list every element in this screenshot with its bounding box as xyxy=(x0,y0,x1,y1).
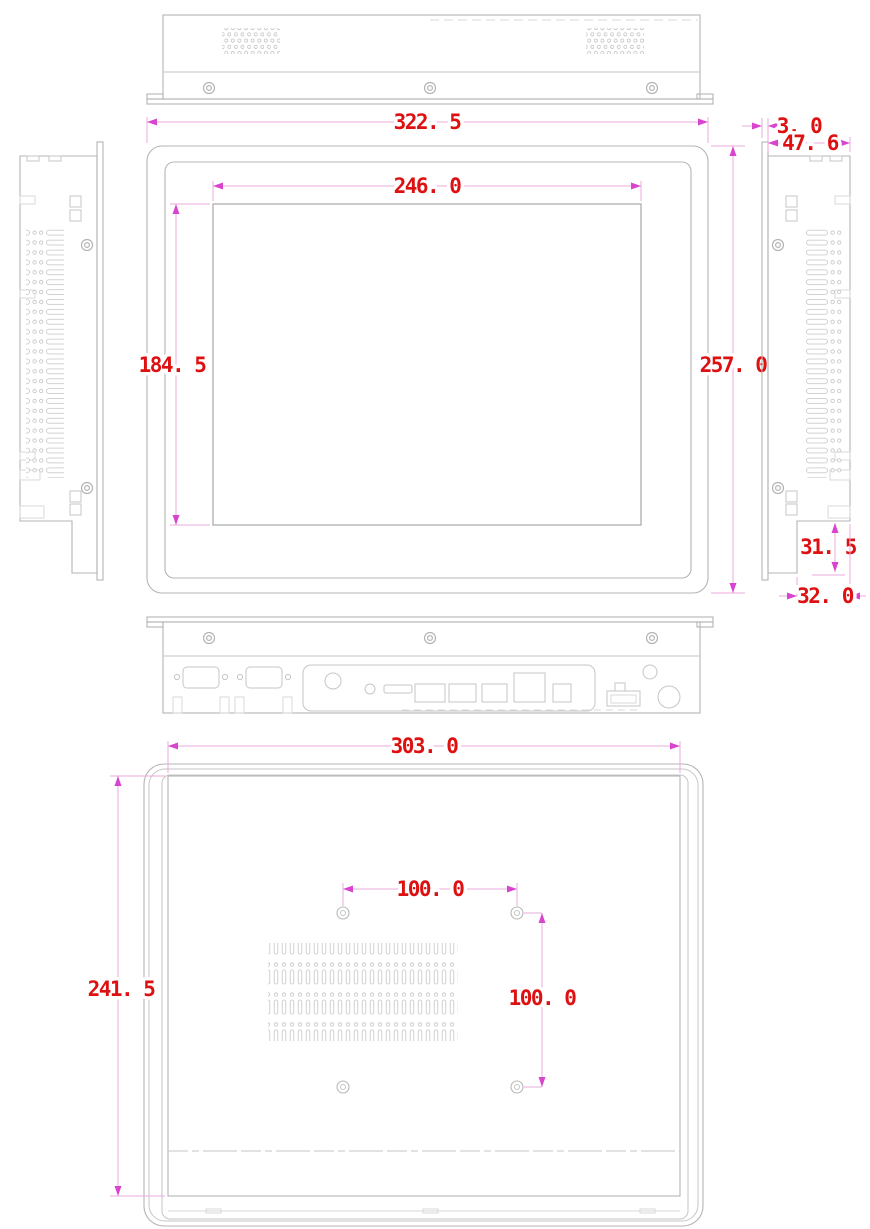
dim-label-display-height: 184. 5 xyxy=(139,353,207,377)
dim-label-rear-body-height: 241. 5 xyxy=(88,977,156,1001)
rear-vent-grille xyxy=(268,943,458,1041)
screw-icon xyxy=(647,633,658,644)
dim-label-display-width: 246. 0 xyxy=(394,174,462,198)
screw-icon xyxy=(204,83,215,94)
dim-label-vesa-horizontal: 100. 0 xyxy=(397,877,465,901)
screw-icon xyxy=(773,240,784,251)
side-vent-grille xyxy=(806,228,844,478)
screw-icon xyxy=(425,633,436,644)
screw-icon xyxy=(425,83,436,94)
dimension-drawing-canvas: 322. 5 246. 0 184. 5 257. 0 xyxy=(0,0,870,1229)
dim-label-rear-step-height: 31. 5 xyxy=(800,535,857,559)
dim-label-rear-body-width: 303. 0 xyxy=(391,734,459,758)
screw-icon xyxy=(773,483,784,494)
speaker-grille-left xyxy=(222,28,280,54)
dim-label-overall-height: 257. 0 xyxy=(700,353,768,377)
dim-label-vesa-vertical: 100. 0 xyxy=(509,986,577,1010)
vesa-hole-icon xyxy=(337,1081,349,1093)
dim-label-overall-width: 322. 5 xyxy=(394,110,462,134)
screw-icon xyxy=(82,483,93,494)
dimension-drawing-page: 322. 5 246. 0 184. 5 257. 0 xyxy=(0,0,870,1229)
vesa-hole-icon xyxy=(511,1081,523,1093)
screw-icon xyxy=(647,83,658,94)
vesa-hole-icon xyxy=(511,907,523,919)
dim-label-rear-step-depth: 32. 0 xyxy=(797,584,854,608)
vesa-hole-icon xyxy=(337,907,349,919)
speaker-grille-right xyxy=(586,28,644,54)
screw-icon xyxy=(82,240,93,251)
dim-label-overall-depth: 47. 6 xyxy=(782,131,839,155)
screw-icon xyxy=(204,633,215,644)
display-area xyxy=(213,204,641,525)
side-vent-grille xyxy=(26,228,64,478)
